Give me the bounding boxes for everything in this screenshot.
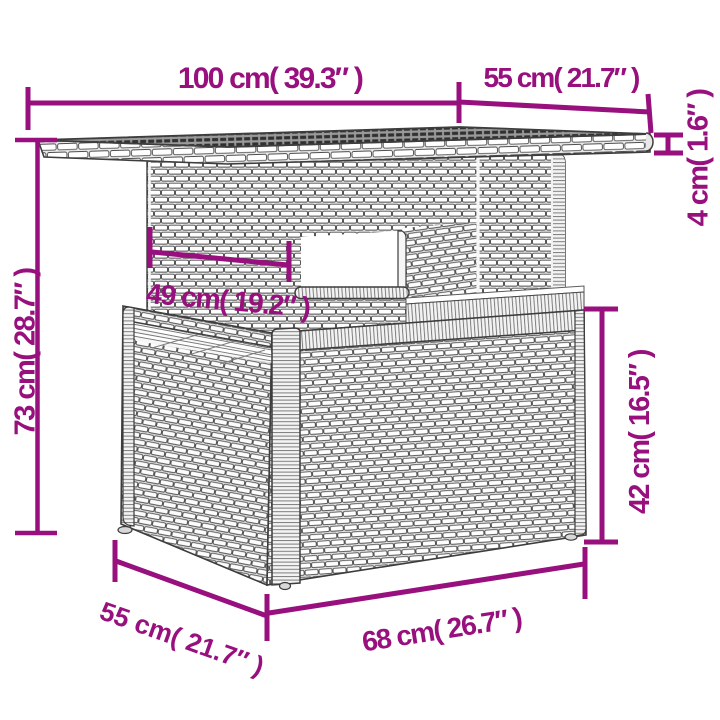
svg-text:42 cm( 16.5″ ): 42 cm( 16.5″ ) xyxy=(624,349,656,514)
svg-text:4 cm( 1.6″ ): 4 cm( 1.6″ ) xyxy=(683,89,715,226)
svg-text:73 cm( 28.7″ ): 73 cm( 28.7″ ) xyxy=(10,268,42,436)
svg-text:100 cm( 39.3″ ): 100 cm( 39.3″ ) xyxy=(178,62,363,95)
svg-text:55 cm( 21.7″ ): 55 cm( 21.7″ ) xyxy=(484,62,639,93)
